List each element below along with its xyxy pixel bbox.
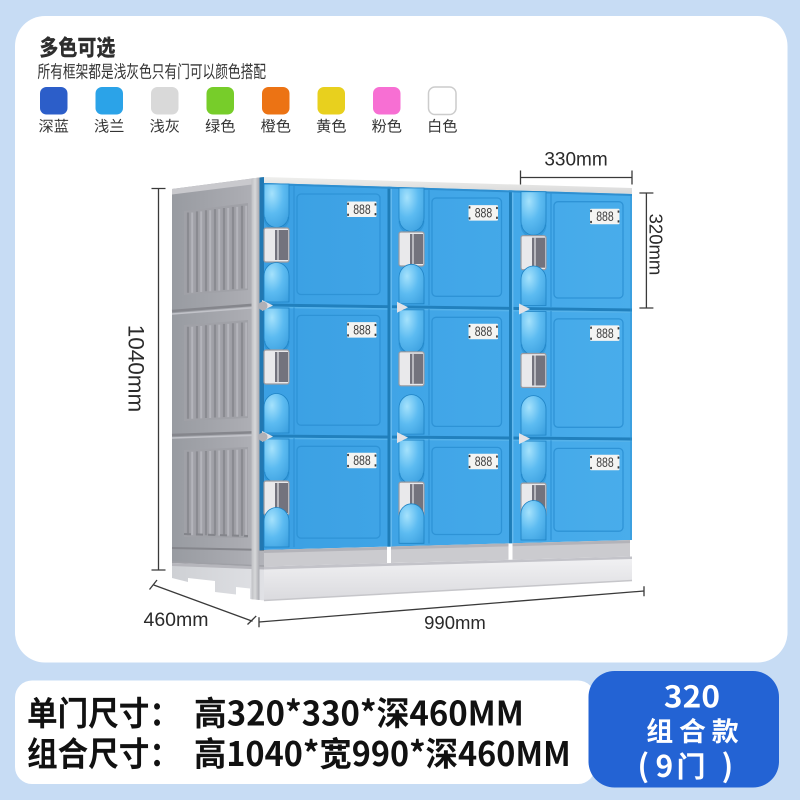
svg-text:888: 888 xyxy=(596,455,614,470)
svg-text:888: 888 xyxy=(475,206,493,221)
svg-text:888: 888 xyxy=(475,454,493,469)
svg-text:888: 888 xyxy=(353,202,371,217)
svg-text:990mm: 990mm xyxy=(424,612,486,633)
svg-text:888: 888 xyxy=(596,209,614,224)
svg-text:330mm: 330mm xyxy=(544,150,607,171)
svg-text:1040mm: 1040mm xyxy=(124,325,149,413)
svg-text:888: 888 xyxy=(596,326,614,341)
svg-text:888: 888 xyxy=(353,323,371,338)
svg-text:460mm: 460mm xyxy=(143,609,208,631)
svg-text:888: 888 xyxy=(475,324,493,339)
svg-text:320mm: 320mm xyxy=(646,214,667,276)
svg-text:888: 888 xyxy=(353,453,371,468)
